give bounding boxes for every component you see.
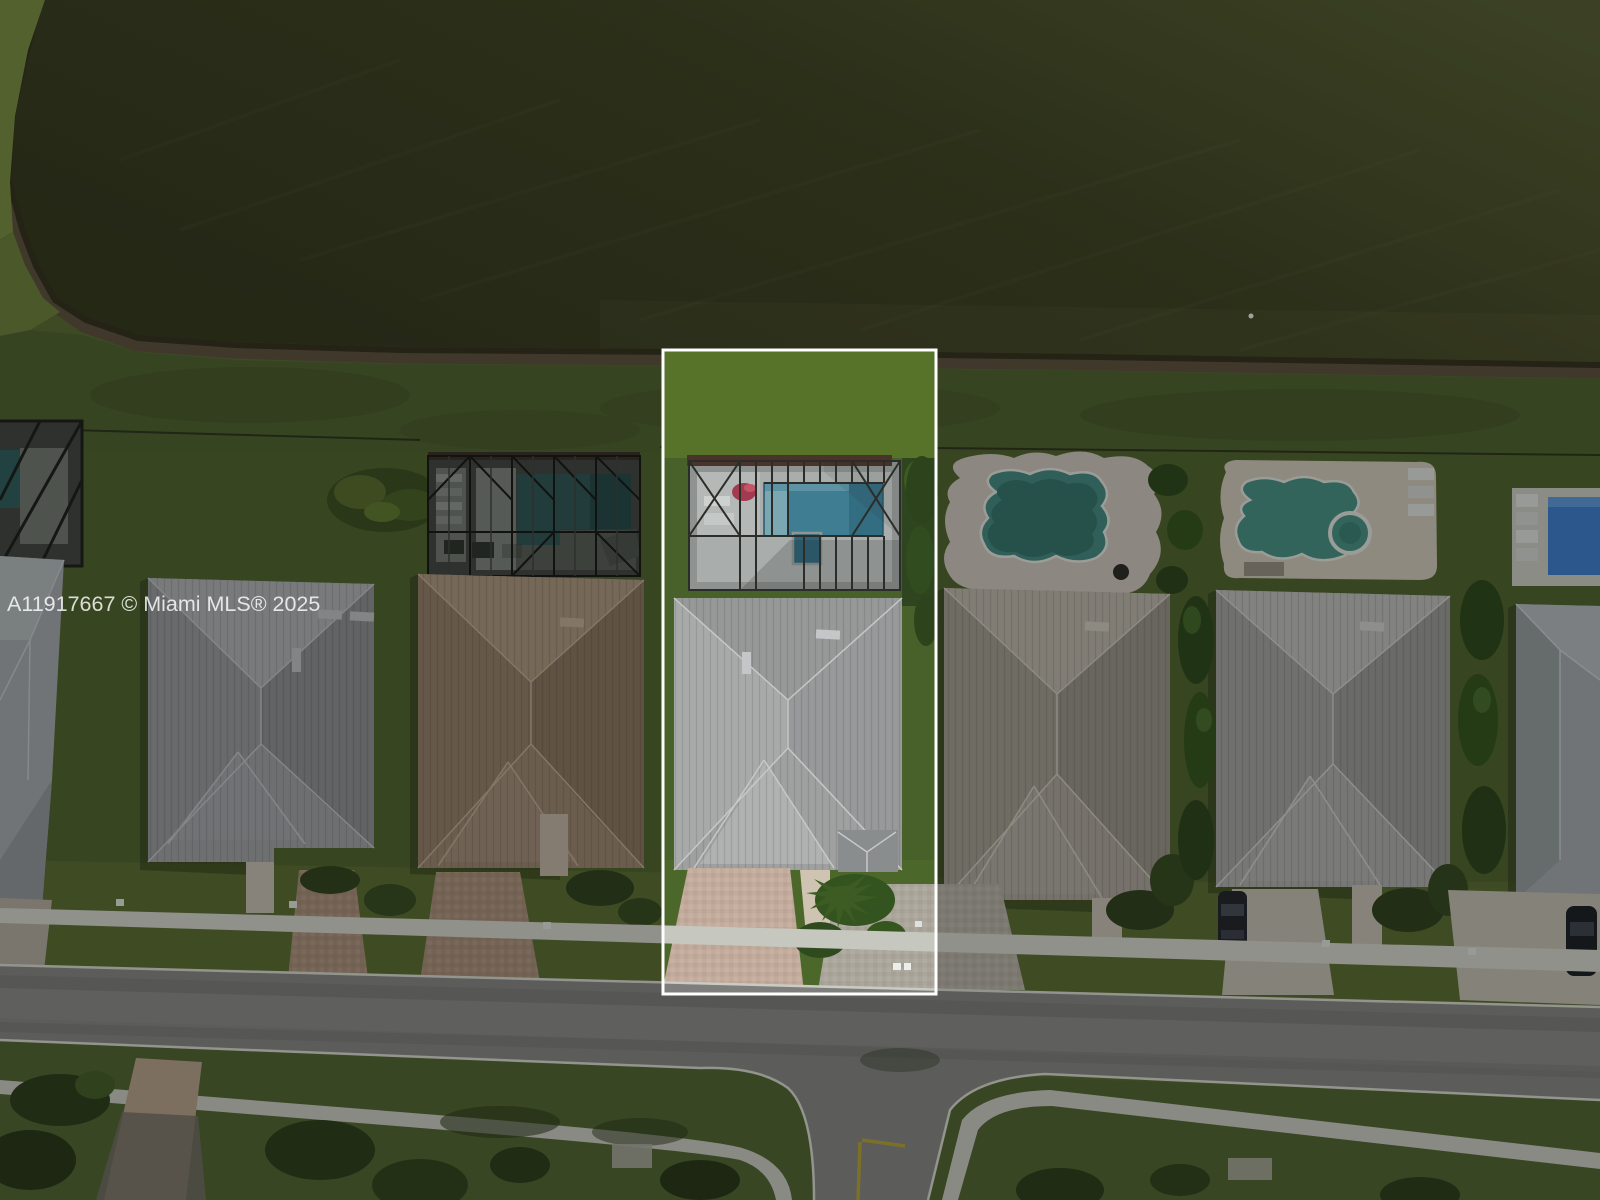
svg-text:A11917667 © Miami MLS® 2025: A11917667 © Miami MLS® 2025 [7,592,320,616]
